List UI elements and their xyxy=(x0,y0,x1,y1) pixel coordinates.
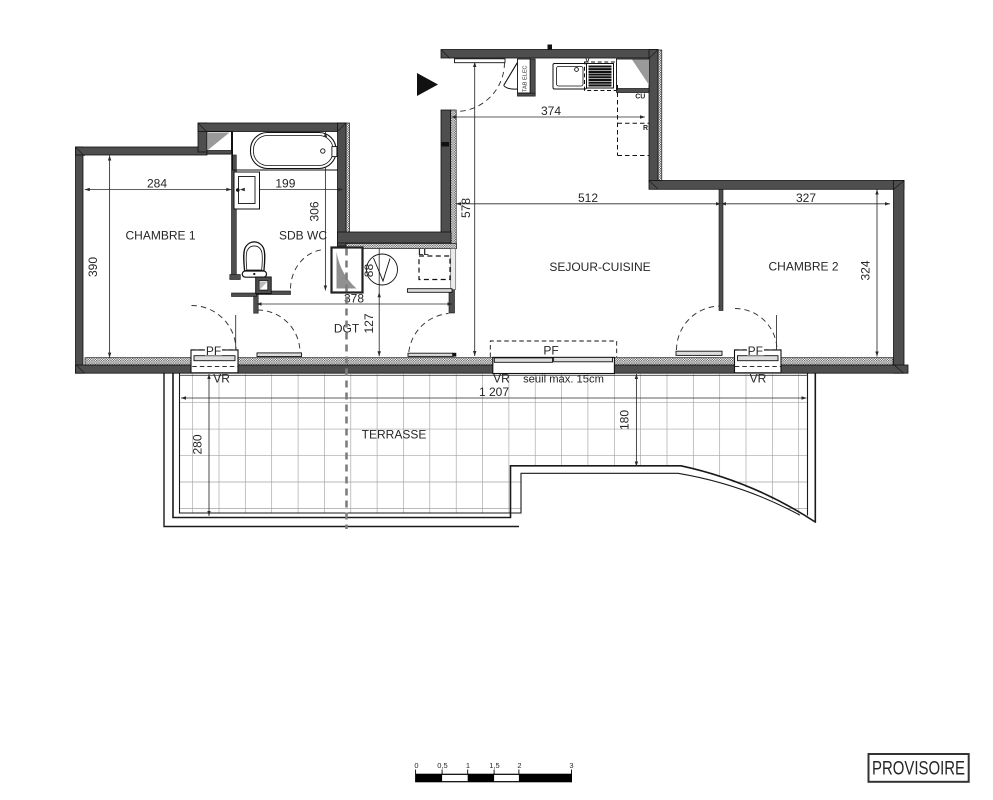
svg-text:PF: PF xyxy=(206,344,221,358)
svg-text:V: V xyxy=(585,58,590,65)
svg-text:VR: VR xyxy=(750,371,767,385)
svg-text:VR: VR xyxy=(213,371,230,385)
svg-text:0,5: 0,5 xyxy=(437,761,447,770)
svg-text:3: 3 xyxy=(569,761,573,770)
svg-text:PF: PF xyxy=(543,344,558,358)
svg-text:1,5: 1,5 xyxy=(489,761,499,770)
svg-text:284: 284 xyxy=(147,176,167,190)
svg-text:180: 180 xyxy=(618,410,632,430)
svg-text:CHAMBRE 2: CHAMBRE 2 xyxy=(768,260,838,274)
svg-text:199: 199 xyxy=(275,176,295,190)
svg-text:CU: CU xyxy=(635,94,645,101)
svg-text:327: 327 xyxy=(796,191,816,205)
svg-text:TERRASSE: TERRASSE xyxy=(362,428,427,442)
svg-text:PROVISOIRE: PROVISOIRE xyxy=(872,759,965,780)
svg-text:578: 578 xyxy=(459,198,473,218)
svg-text:VR: VR xyxy=(493,371,510,385)
svg-text:1: 1 xyxy=(466,761,470,770)
svg-text:390: 390 xyxy=(86,257,100,277)
svg-text:374: 374 xyxy=(541,104,561,118)
svg-text:seuil max. 15cm: seuil max. 15cm xyxy=(523,373,604,385)
svg-text:127: 127 xyxy=(362,313,376,333)
svg-text:2: 2 xyxy=(517,761,521,770)
svg-text:R: R xyxy=(643,125,648,132)
svg-text:512: 512 xyxy=(578,191,598,205)
svg-text:PF: PF xyxy=(748,344,763,358)
svg-text:324: 324 xyxy=(859,260,873,280)
svg-text:280: 280 xyxy=(191,434,205,454)
svg-text:SEJOUR-CUISINE: SEJOUR-CUISINE xyxy=(549,260,650,274)
svg-text:TAB ELEC: TAB ELEC xyxy=(523,65,529,92)
svg-text:LL: LL xyxy=(418,247,428,257)
svg-text:1 207: 1 207 xyxy=(479,385,509,399)
svg-text:SDB WC: SDB WC xyxy=(279,229,327,243)
svg-text:CHAMBRE 1: CHAMBRE 1 xyxy=(125,229,195,243)
svg-text:0: 0 xyxy=(414,761,418,770)
svg-text:88: 88 xyxy=(362,264,376,278)
svg-text:306: 306 xyxy=(308,201,322,221)
